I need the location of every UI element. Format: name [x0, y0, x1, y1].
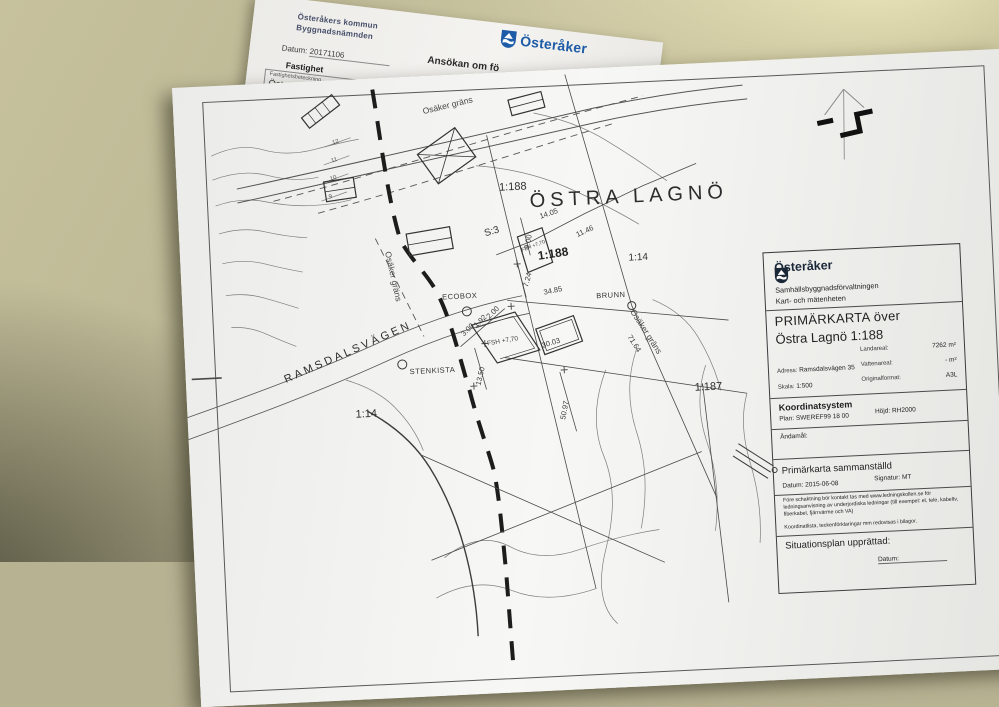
osteraker-logo: Österåker	[499, 29, 588, 57]
map-label-area-name: ÖSTRA LAGNÖ	[529, 181, 728, 212]
map-dim-30-03: 30.03	[541, 336, 562, 350]
map-label-parcel-s3: S:3	[483, 224, 501, 239]
signature-row: Signatur: MT	[874, 474, 912, 483]
map-dim-2-00: 2.00	[484, 304, 501, 321]
compiled-date-value: 2015-06-08	[805, 480, 839, 489]
titleblock-divider	[773, 450, 969, 460]
stream-line	[367, 406, 478, 640]
scale-row: Skala: 1:500	[778, 382, 813, 391]
format-value: A3L	[946, 371, 958, 379]
situation-plan-date: Datum:	[878, 553, 947, 564]
form-sender-block: Österåkers kommun Byggnadsnämnden	[296, 12, 379, 43]
form-heading: Ansökan om fö	[427, 55, 500, 74]
land-area-label: Landareal:	[860, 346, 889, 353]
bold-dashed-boundary	[372, 84, 514, 678]
roads	[173, 85, 762, 440]
address-label: Adress:	[777, 368, 798, 375]
map-dim-71-64: 71.64	[626, 333, 644, 354]
survey-lines	[178, 67, 757, 628]
map-label-house-fsh: FSH +7,70	[487, 335, 519, 347]
buildings	[301, 83, 584, 371]
titleblock-logo: Österåker	[774, 258, 833, 275]
form-date-label: Datum:	[281, 43, 308, 55]
map-label-stenkista: STENKISTA	[409, 365, 455, 376]
map-contour-11: 11	[330, 157, 338, 165]
titleblock-department-line1: Samhällsbyggnadsförvaltningen	[775, 281, 879, 295]
map-label-boundary-top: Osäker gräns	[422, 94, 474, 116]
format-label: Originalformat:	[861, 375, 901, 383]
map-contour-10: 10	[329, 175, 338, 183]
map-dim-11-46: 11.46	[575, 223, 595, 239]
water-area-value: - m²	[945, 356, 957, 364]
dashed-boundaries	[269, 96, 653, 343]
osteraker-logo-text: Österåker	[519, 33, 588, 57]
coord-height-label: Höjd:	[875, 408, 891, 416]
water-area-label: Vattenareal:	[861, 360, 893, 367]
map-contour-12: 12	[332, 138, 341, 146]
stenkista-symbol	[398, 360, 407, 369]
map-label-parcel-114-right: 1:14	[628, 252, 648, 264]
map-label-brunn: BRUNN	[596, 290, 626, 300]
scale-label: Skala:	[778, 384, 795, 391]
ecobox-symbol	[462, 307, 471, 316]
coord-height-row: Höjd: RH2000	[875, 406, 916, 415]
purpose-label: Ändamål:	[780, 432, 808, 440]
titleblock-department-line2: Kart- och mätenheten	[776, 293, 847, 305]
primary-map-sheet: Osäker gräns 1:188 ÖSTRA LAGNÖ 14.05 11.…	[172, 49, 999, 707]
land-area-value: 7262 m²	[932, 341, 956, 349]
map-title-block: Österåker Samhällsbyggnadsförvaltningen …	[762, 243, 976, 594]
map-dim-7-24: 7.24	[521, 272, 534, 288]
coord-plan-label: Plan:	[779, 415, 794, 423]
north-arrow-icon	[815, 87, 877, 161]
map-label-parcel-1188-bold: 1:188	[537, 244, 570, 263]
map-label-parcel-1187: 1:187	[694, 380, 722, 393]
coord-system-heading: Koordinatsystem	[779, 399, 853, 412]
map-label-boundary-left: Osäker gräns	[383, 250, 404, 302]
map-label-road-name: RAMSDALSVÄGEN	[282, 319, 413, 385]
address-row: Adress: Ramsdalsvägen 35	[777, 364, 855, 375]
osteraker-shield-icon	[499, 29, 517, 49]
titleblock-title-line2: Östra Lagnö 1:188	[775, 327, 883, 347]
titleblock-title-line1: PRIMÄRKARTA över	[774, 308, 900, 329]
scale-value: 1:500	[796, 382, 813, 390]
address-value: Ramsdalsvägen 35	[799, 364, 855, 374]
coord-plan-value: SWEREF99 18 00	[796, 412, 849, 421]
point-symbols	[395, 299, 638, 369]
map-label-parcel-1188: 1:188	[499, 180, 527, 193]
signature-value: MT	[902, 474, 912, 481]
map-dim-34-85: 34.85	[543, 284, 563, 297]
coord-plan-row: Plan: SWEREF99 18 00	[779, 412, 849, 422]
signature-label: Signatur:	[874, 474, 900, 482]
coord-height-value: RH2000	[892, 406, 916, 414]
map-label-parcel-114-left: 1:14	[355, 408, 377, 421]
map-dim-50-97: 50.97	[558, 400, 571, 420]
titleblock-divider	[770, 389, 966, 399]
compiled-date-label: Datum:	[782, 482, 803, 490]
situation-plan-heading: Situationsplan upprättad:	[785, 536, 891, 552]
map-label-ecobox: ECOBOX	[442, 291, 477, 302]
compiled-date-row: Datum: 2015-06-08	[782, 480, 838, 490]
